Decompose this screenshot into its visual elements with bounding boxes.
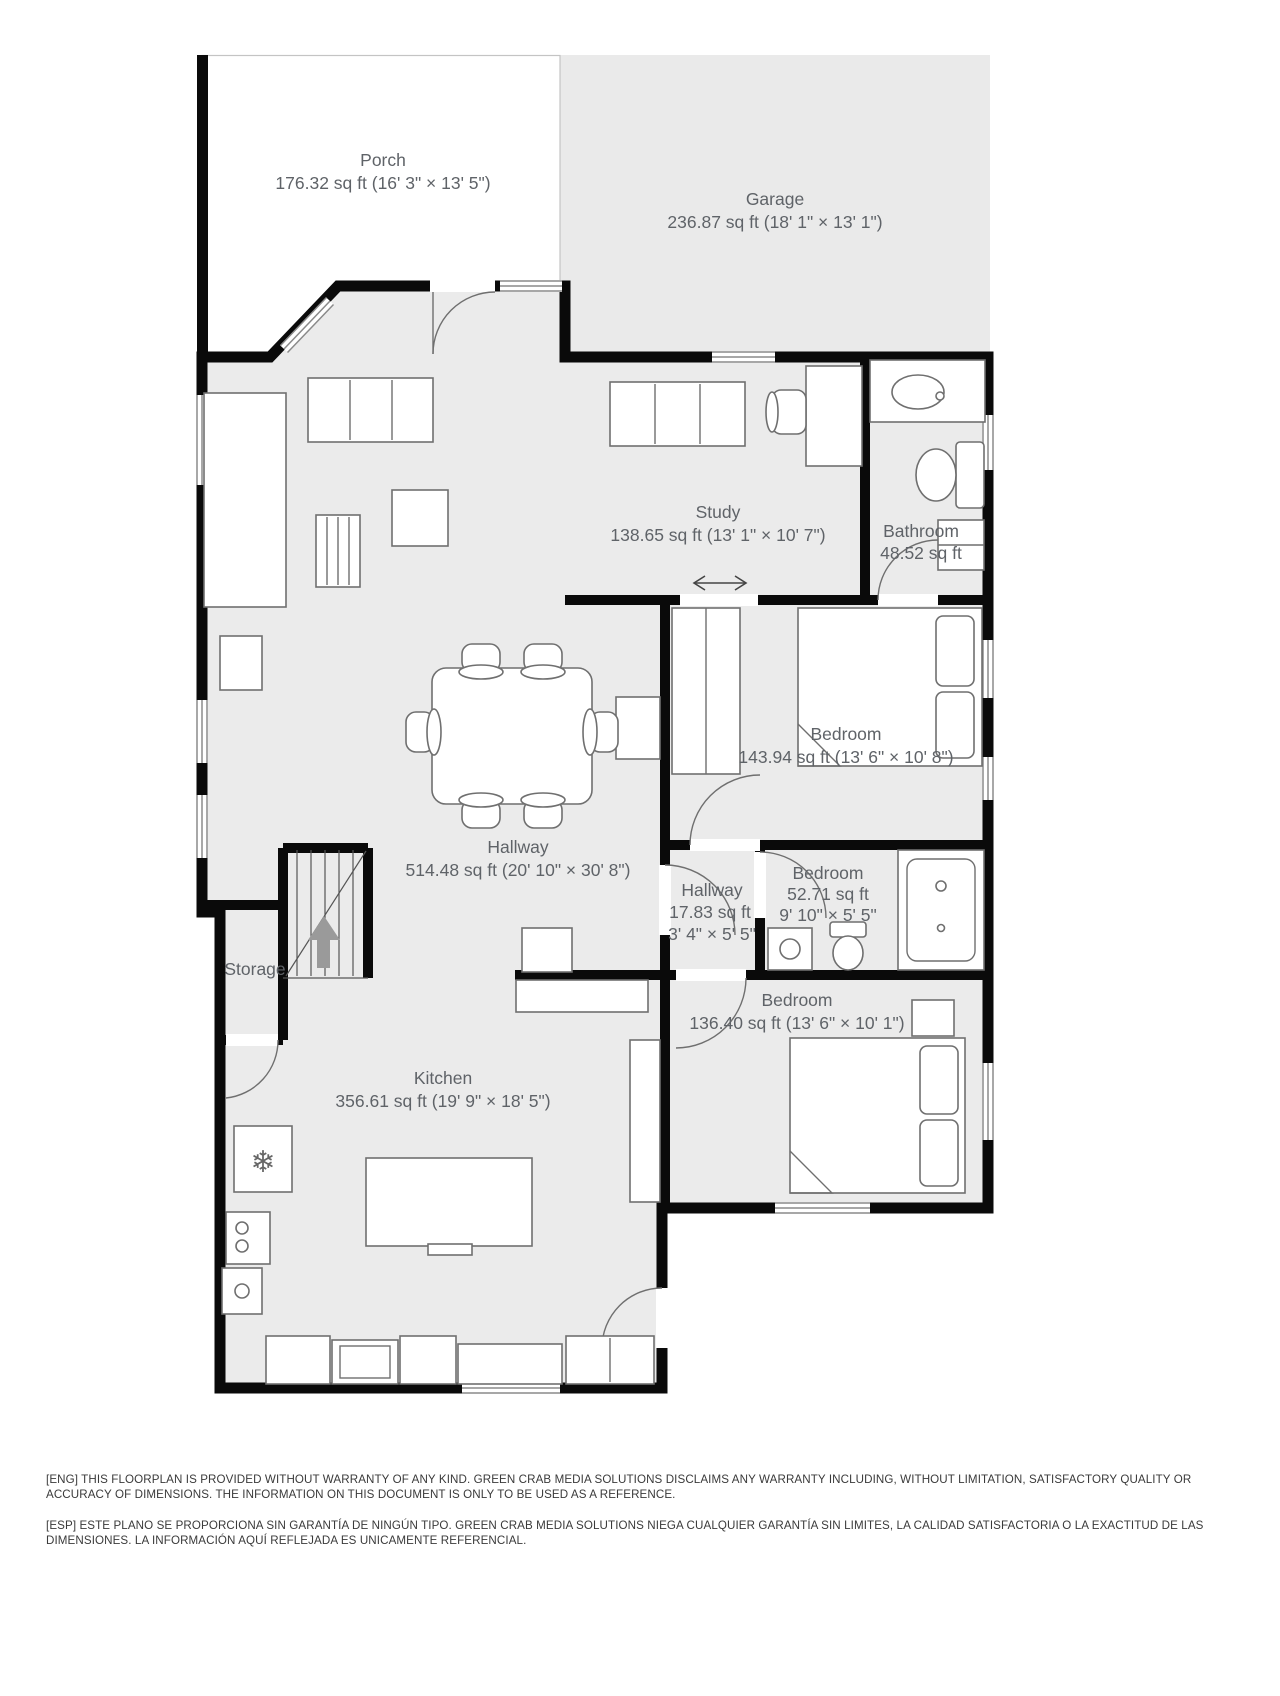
console-table	[616, 697, 660, 759]
svg-text:17.83 sq ft: 17.83 sq ft	[669, 902, 751, 922]
svg-text:Bathroom: Bathroom	[883, 521, 959, 541]
bedroom1-door-gap	[690, 839, 760, 851]
toilet-symbol	[830, 922, 866, 970]
armchair-symbol	[316, 515, 360, 587]
dining-chair	[521, 793, 565, 828]
sofa-symbol	[308, 378, 433, 442]
window	[712, 351, 775, 363]
fridge: ❄	[234, 1126, 292, 1192]
desk	[806, 366, 862, 466]
house-floor	[202, 286, 988, 1388]
svg-text:Garage: Garage	[746, 189, 804, 209]
window	[196, 700, 208, 763]
svg-text:514.48 sq ft (20' 10" × 30' 8": 514.48 sq ft (20' 10" × 30' 8")	[406, 860, 631, 880]
dining-chair	[406, 709, 441, 755]
bed-symbol	[790, 1038, 965, 1193]
floorplan-drawing: ❄ Porch 176.32 sq ft (16' 3" × 13' 5") G…	[0, 0, 1280, 1460]
dining-table	[432, 668, 592, 804]
svg-text:Storage: Storage	[224, 959, 285, 979]
hall-cabinet	[522, 928, 572, 972]
disclaimer-english: [ENG] THIS FLOORPLAN IS PROVIDED WITHOUT…	[46, 1472, 1236, 1503]
shower-stall	[898, 850, 984, 970]
sideboard-cabinet	[516, 980, 648, 1012]
svg-text:Study: Study	[696, 502, 741, 522]
bathroom-door-gap	[878, 594, 938, 606]
disclaimer-spanish: [ESP] ESTE PLANO SE PROPORCIONA SIN GARA…	[46, 1518, 1236, 1549]
window	[500, 280, 562, 292]
console-table	[204, 393, 286, 607]
room-label-bedroom-2: Bedroom 52.71 sq ft 9' 10" × 5' 5"	[779, 863, 876, 925]
svg-text:Porch: Porch	[360, 150, 406, 170]
window	[982, 640, 994, 698]
svg-text:Bedroom: Bedroom	[792, 863, 863, 883]
closet	[672, 608, 740, 774]
small-sink	[768, 928, 812, 970]
bedroom3-door-gap	[676, 969, 746, 981]
dining-chair	[459, 644, 503, 679]
side-table	[220, 636, 262, 690]
dining-chair	[459, 793, 503, 828]
kitchen-sink	[226, 1212, 270, 1264]
svg-text:176.32 sq ft (16' 3" × 13' 5"): 176.32 sq ft (16' 3" × 13' 5")	[275, 173, 490, 193]
fridge-snowflake-icon: ❄	[250, 1145, 275, 1180]
backdoor-gap	[656, 1288, 668, 1348]
window	[196, 795, 208, 858]
dining-chair	[521, 644, 565, 679]
svg-text:Hallway: Hallway	[487, 837, 549, 857]
svg-text:Bedroom: Bedroom	[761, 990, 832, 1010]
porch-left-wall	[197, 55, 208, 358]
bathroom-vanity-sink	[870, 360, 985, 422]
study-opening	[680, 594, 758, 606]
porch-door-gap	[430, 280, 495, 292]
svg-text:3' 4" × 5' 5": 3' 4" × 5' 5"	[668, 924, 756, 944]
svg-text:9' 10" × 5' 5": 9' 10" × 5' 5"	[779, 905, 876, 925]
svg-text:Hallway: Hallway	[681, 880, 743, 900]
room-label-storage: Storage	[224, 959, 285, 979]
bedroom2-door-gap	[754, 852, 766, 918]
dining-chair	[583, 709, 618, 755]
window	[982, 1063, 994, 1140]
sofa-symbol	[610, 382, 745, 446]
svg-text:236.87 sq ft (18' 1" × 13' 1"): 236.87 sq ft (18' 1" × 13' 1")	[667, 212, 882, 232]
storage-door-gap	[226, 1034, 278, 1046]
svg-text:138.65 sq ft (13' 1" × 10' 7"): 138.65 sq ft (13' 1" × 10' 7")	[610, 525, 825, 545]
svg-text:Bedroom: Bedroom	[810, 724, 881, 744]
kitchen-island	[366, 1158, 532, 1255]
svg-text:143.94 sq ft (13' 6" × 10' 8"): 143.94 sq ft (13' 6" × 10' 8")	[738, 747, 953, 767]
svg-text:136.40 sq ft (13' 6" × 10' 1"): 136.40 sq ft (13' 6" × 10' 1")	[689, 1013, 904, 1033]
svg-text:48.52 sq ft: 48.52 sq ft	[880, 543, 962, 563]
disclaimer-block: [ENG] THIS FLOORPLAN IS PROVIDED WITHOUT…	[46, 1472, 1236, 1563]
side-table	[392, 490, 448, 546]
svg-text:52.71 sq ft: 52.71 sq ft	[787, 884, 869, 904]
tall-cabinet	[630, 1040, 660, 1202]
window	[982, 757, 994, 800]
desk-chair	[766, 390, 806, 434]
nightstand	[912, 1000, 954, 1036]
svg-text:Kitchen: Kitchen	[414, 1068, 472, 1088]
window	[775, 1202, 870, 1214]
kitchen-appliance	[222, 1268, 262, 1314]
svg-text:356.61 sq ft (19' 9" × 18' 5"): 356.61 sq ft (19' 9" × 18' 5")	[335, 1091, 550, 1111]
